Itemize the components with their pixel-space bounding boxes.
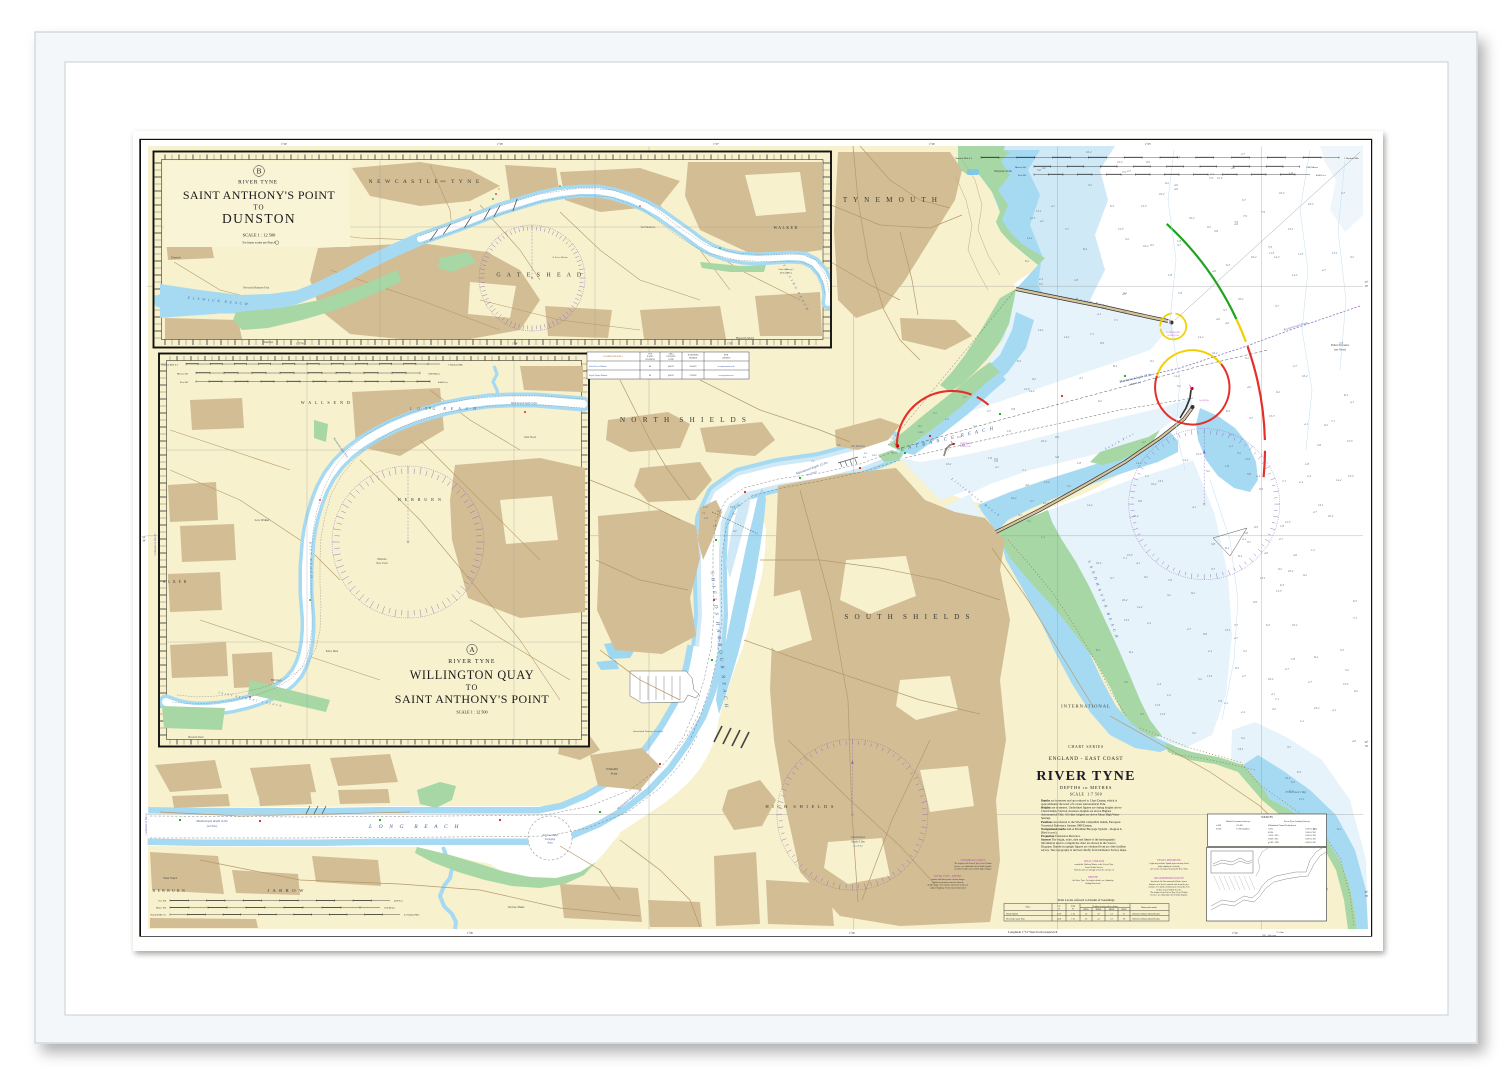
svg-text:Longitude 1°31' West from Gre: Longitude 1°31' West from Greenwich [1008, 930, 1058, 934]
svg-text:The depths of the Port of Tyne: The depths of the Port of Tyne Vessel Tr… [1150, 891, 1187, 894]
svg-text:T Y N E M O U T H: T Y N E M O U T H [843, 196, 939, 204]
svg-text:7.1: 7.1 [1275, 697, 1279, 701]
svg-text:(see Note): (see Note) [853, 845, 863, 848]
svg-text:54°: 54° [1365, 741, 1369, 744]
svg-text:RIVER TYNE - DEPTHS: RIVER TYNE - DEPTHS [934, 875, 962, 878]
svg-text:Jarrow Slake: Jarrow Slake [508, 905, 525, 909]
svg-text:2.7: 2.7 [1127, 169, 1131, 173]
svg-text:5.2: 5.2 [1340, 648, 1344, 652]
svg-text:13.1: 13.1 [1238, 747, 1244, 751]
svg-text:6.3: 6.3 [1353, 599, 1357, 603]
svg-text:North Shields: North Shields [1006, 913, 1018, 915]
svg-text:Elswick: Elswick [171, 256, 181, 260]
svg-text:9.2: 9.2 [1150, 243, 1154, 247]
svg-text:should use the Recommended Rou: should use the Recommended Route from a [1151, 880, 1187, 883]
svg-text:DUNSTON: DUNSTON [222, 211, 296, 226]
svg-text:Frenchman's Bay: Frenchman's Bay [1285, 790, 1308, 794]
svg-text:1:500-1:2 500: 1:500-1:2 500 [1305, 835, 1316, 837]
svg-text:2.4: 2.4 [1208, 649, 1212, 653]
svg-text:7.1: 7.1 [933, 411, 937, 415]
svg-text:3.2: 3.2 [1350, 255, 1354, 259]
svg-text:14.2: 14.2 [1336, 478, 1342, 482]
svg-text:B: B [256, 167, 261, 176]
svg-text:10.2: 10.2 [1288, 569, 1294, 573]
svg-text:7.9: 7.9 [1268, 245, 1272, 249]
svg-text:b Maintained Channel Dredged: b Maintained Channel Dredged areas [1268, 824, 1296, 827]
svg-text:10.2: 10.2 [1268, 677, 1274, 681]
svg-text:3.7: 3.7 [945, 448, 949, 452]
svg-text:5.2: 5.2 [1243, 649, 1247, 653]
svg-text:10.2: 10.2 [1011, 496, 1017, 500]
svg-text:2.4: 2.4 [1299, 480, 1303, 484]
svg-text:9.2: 9.2 [918, 424, 922, 428]
svg-text:7.9: 7.9 [1339, 341, 1343, 345]
svg-text:AREA: AREA [668, 353, 674, 356]
svg-text:3.2: 3.2 [1125, 237, 1129, 241]
svg-text:4.1: 4.1 [1242, 537, 1246, 541]
svg-text:L O N G R E A C H: L O N G R E A C H [368, 824, 461, 830]
svg-text:55°: 55° [1365, 281, 1369, 284]
svg-text:5.8: 5.8 [1037, 168, 1041, 172]
svg-text:MHWN: MHWN [1096, 909, 1102, 911]
svg-text:1.8: 1.8 [988, 456, 992, 460]
svg-text:2.60m below Ordnance Datum (Ne: 2.60m below Ordnance Datum (Newlyn) [1132, 918, 1160, 921]
svg-text:b 1856: b 1856 [1216, 828, 1221, 830]
svg-text:British Government Surveys: British Government Surveys [1226, 821, 1250, 823]
svg-text:the River Tyne. For further de: the River Tyne. For further details, see… [1073, 879, 1115, 882]
svg-text:Datum and remarks: Datum and remarks [1141, 907, 1157, 909]
svg-text:Low Walker: Low Walker [255, 518, 270, 522]
svg-text:Saint Peter's Marina: Saint Peter's Marina [589, 366, 607, 368]
svg-text:4000 Feet: 4000 Feet [394, 901, 403, 903]
svg-text:2654472: 2654472 [690, 366, 697, 368]
svg-text:4.1: 4.1 [1079, 376, 1083, 380]
svg-text:59': 59' [1365, 745, 1369, 748]
svg-text:Royal Quays Marina: Royal Quays Marina [589, 375, 607, 377]
svg-text:8.4: 8.4 [1314, 655, 1318, 659]
svg-text:8.4: 8.4 [1238, 554, 1242, 558]
svg-text:5.2: 5.2 [1027, 519, 1031, 523]
svg-text:1.8: 1.8 [1178, 291, 1182, 295]
svg-text:13.1: 13.1 [1124, 618, 1130, 622]
svg-text:6.3: 6.3 [1017, 359, 1021, 363]
svg-text:8.4: 8.4 [1313, 827, 1317, 831]
svg-text:3.7: 3.7 [1018, 513, 1022, 517]
svg-text:SAINT ANTHONY'S POINT: SAINT ANTHONY'S POINT [395, 692, 550, 706]
svg-text:CHANNELS: CHANNELS [645, 358, 655, 361]
svg-text:Light may indicate liquids rep: Light may indicate liquids represent may… [1149, 862, 1189, 865]
svg-text:Area: Area [546, 842, 553, 845]
svg-text:6.3: 6.3 [1266, 623, 1270, 627]
svg-text:5.2: 5.2 [1198, 677, 1202, 681]
svg-text:1 Nautical Mile: 1 Nautical Mile [1344, 157, 1359, 160]
svg-text:1.8: 1.8 [994, 459, 998, 463]
svg-text:9.2: 9.2 [733, 530, 737, 533]
svg-text:11.5: 11.5 [1298, 252, 1304, 256]
svg-text:7.9: 7.9 [1243, 214, 1247, 218]
svg-text:1.2: 1.2 [1145, 474, 1149, 478]
svg-text:3.2: 3.2 [1237, 451, 1241, 455]
svg-text:12.5: 12.5 [892, 452, 897, 455]
svg-text:Tidal streams set strongly acr: Tidal streams set strongly across the en… [1074, 869, 1114, 872]
svg-text:Oc.W.R.G.10s: Oc.W.R.G.10s [1167, 335, 1179, 337]
svg-text:15.3: 15.3 [1269, 414, 1275, 418]
svg-text:14.2: 14.2 [1183, 458, 1189, 462]
svg-text:5.2: 5.2 [1206, 469, 1210, 473]
svg-text:8.4: 8.4 [1102, 306, 1106, 310]
svg-text:10.2: 10.2 [1189, 216, 1195, 220]
svg-text:15.3: 15.3 [1127, 553, 1133, 557]
svg-text:Feet 100: Feet 100 [158, 901, 167, 903]
svg-text:10.2: 10.2 [1251, 255, 1257, 259]
svg-text:10.2: 10.2 [946, 462, 952, 466]
svg-text:2.7: 2.7 [1030, 499, 1034, 503]
svg-text:15.3: 15.3 [1348, 474, 1354, 478]
svg-text:2.7: 2.7 [1187, 627, 1191, 631]
svg-text:0.9: 0.9 [1203, 632, 1207, 636]
svg-text:1200 Metres: 1200 Metres [384, 908, 395, 910]
svg-text:3.7: 3.7 [1275, 304, 1279, 308]
svg-text:Metres 100: Metres 100 [156, 908, 167, 910]
svg-text:West Wood: West Wood [524, 436, 537, 439]
svg-text:8.4: 8.4 [1113, 364, 1117, 368]
svg-text:N O R T H S H I E L D S: N O R T H S H I E L D S [620, 416, 748, 424]
svg-text:6.3: 6.3 [1039, 282, 1043, 286]
svg-text:6.3: 6.3 [1280, 583, 1284, 587]
svg-text:7.1: 7.1 [1114, 318, 1118, 322]
svg-text:distance of at least 1 nautica: distance of at least 1 nautical mile fro… [1149, 883, 1189, 886]
svg-text:9.2: 9.2 [1303, 573, 1307, 577]
svg-text:2.7: 2.7 [987, 409, 991, 413]
svg-text:9.2: 9.2 [1144, 575, 1148, 579]
svg-text:1.2: 1.2 [1300, 719, 1304, 723]
svg-text:4.6: 4.6 [1225, 321, 1229, 325]
svg-text:1.2: 1.2 [1311, 548, 1315, 552]
svg-text:www.stpetersmarina.co.uk: www.stpetersmarina.co.uk [718, 366, 735, 368]
svg-text:DIALLING: DIALLING [666, 355, 676, 358]
svg-text:10.2: 10.2 [1151, 482, 1157, 486]
svg-text:9.2: 9.2 [1098, 399, 1102, 403]
svg-text:J A R R O W: J A R R O W [267, 888, 304, 893]
svg-text:6.3: 6.3 [1110, 204, 1114, 208]
svg-text:14.2: 14.2 [1087, 503, 1093, 507]
svg-text:5.2: 5.2 [1192, 731, 1196, 735]
svg-text:13.1: 13.1 [1318, 503, 1324, 507]
svg-text:Heights in metres above datum: Heights in metres above datum [1093, 905, 1118, 908]
svg-text:entrance. For further informat: entrance. For further information consul… [1148, 886, 1189, 889]
svg-text:4.1: 4.1 [1332, 708, 1336, 712]
svg-text:1°24': 1°24' [1232, 932, 1238, 935]
svg-text:7.9: 7.9 [1261, 210, 1265, 214]
svg-text:Long: Long [1071, 905, 1075, 908]
svg-text:5.0: 5.0 [1085, 913, 1087, 915]
svg-text:2.4: 2.4 [1241, 710, 1245, 714]
svg-text:5.8: 5.8 [1247, 472, 1251, 476]
svg-text:2.7: 2.7 [963, 395, 967, 399]
svg-text:1.8: 1.8 [713, 525, 717, 528]
svg-text:15.3: 15.3 [1141, 204, 1147, 208]
svg-text:12.5: 12.5 [1030, 216, 1036, 220]
svg-text:7.9: 7.9 [1168, 578, 1172, 582]
svg-text:Swinging: Swinging [545, 838, 556, 841]
svg-text:1500 Metres: 1500 Metres [428, 372, 440, 375]
svg-text:15.3: 15.3 [1217, 176, 1223, 180]
svg-text:ADDRESS: ADDRESS [722, 357, 731, 360]
svg-text:5.2: 5.2 [1067, 484, 1071, 488]
svg-text:15.3: 15.3 [1117, 160, 1123, 164]
svg-text:2.4: 2.4 [1307, 474, 1311, 478]
svg-text:7.1: 7.1 [702, 512, 706, 515]
svg-text:Feet 100: Feet 100 [180, 381, 189, 384]
svg-text:5.8: 5.8 [1011, 407, 1015, 411]
svg-text:3.7: 3.7 [1249, 416, 1253, 420]
svg-text:55 00: 55 00 [1057, 913, 1061, 915]
svg-text:6.3: 6.3 [1289, 789, 1293, 793]
svg-text:TIDAL STREAMS: TIDAL STREAMS [1084, 860, 1105, 863]
svg-text:5.8: 5.8 [1244, 531, 1248, 535]
svg-text:2.4: 2.4 [1039, 277, 1043, 281]
svg-text:(see Note): (see Note) [207, 825, 218, 828]
svg-text:H E B B U R N: H E B B U R N [153, 889, 186, 893]
svg-text:4.1: 4.1 [1192, 505, 1196, 509]
svg-text:The depths of the Port of Tyne: The depths of the Port of Tyne Vessel Tr… [954, 862, 991, 865]
svg-text:3.7: 3.7 [1177, 243, 1181, 247]
svg-text:12.5: 12.5 [1285, 520, 1291, 524]
svg-text:9.2: 9.2 [1324, 423, 1328, 427]
svg-text:Sailing Directions.: Sailing Directions. [1085, 882, 1101, 885]
svg-text:7.1: 7.1 [1065, 227, 1069, 231]
svg-text:3.2: 3.2 [1272, 707, 1276, 711]
svg-text:3.7: 3.7 [732, 513, 736, 516]
svg-text:2.7: 2.7 [1322, 268, 1326, 272]
svg-text:1500 Metres: 1500 Metres [1306, 166, 1318, 169]
svg-text:a 1966: a 1966 [1216, 825, 1221, 827]
svg-text:5.8: 5.8 [1211, 542, 1215, 546]
svg-text:5.8: 5.8 [1214, 229, 1218, 233]
svg-text:Saint Anthony's: Saint Anthony's [778, 268, 793, 271]
svg-text:2.4: 2.4 [1157, 682, 1161, 686]
svg-text:2.4: 2.4 [1147, 621, 1151, 625]
svg-text:d 2014: d 2014 [1268, 832, 1273, 834]
svg-text:(0)0191: (0)0191 [668, 374, 674, 377]
svg-text:Maintained: Maintained [851, 835, 865, 839]
svg-text:7.1: 7.1 [1230, 433, 1234, 437]
svg-text:58': 58' [1365, 895, 1369, 898]
svg-text:INTERNATIONAL: INTERNATIONAL [1061, 704, 1111, 709]
svg-text:1.8: 1.8 [1077, 461, 1081, 465]
svg-text:1:500-1:2 500: 1:500-1:2 500 [1305, 842, 1316, 844]
svg-text:7.9: 7.9 [1218, 699, 1222, 703]
svg-text:1:500-1:2 500: 1:500-1:2 500 [1305, 839, 1316, 841]
svg-text:Hewarth Shore: Hewarth Shore [187, 736, 205, 739]
svg-text:3.7: 3.7 [1242, 198, 1246, 202]
svg-text:Pelaw Main: Pelaw Main [326, 650, 339, 653]
svg-text:0.7: 0.7 [1123, 913, 1125, 915]
svg-text:13.1: 13.1 [1288, 227, 1294, 231]
svg-text:3.9: 3.9 [1097, 913, 1099, 915]
svg-text:3.7: 3.7 [1341, 191, 1345, 195]
svg-text:1°36': 1°36' [512, 343, 518, 346]
svg-text:3.7: 3.7 [1287, 745, 1291, 749]
svg-text:(0)0191: (0)0191 [668, 365, 674, 368]
svg-text:54°: 54° [1365, 891, 1369, 894]
svg-text:0.5 Nautical Mile: 0.5 Nautical Mile [404, 915, 419, 917]
svg-text:1 Nautical Mile: 1 Nautical Mile [448, 363, 463, 366]
svg-text:LIGHTHOUSE: LIGHTHOUSE [1166, 332, 1181, 334]
svg-text:1°25': 1°25' [1145, 143, 1151, 146]
svg-text:Place: Place [1026, 907, 1031, 909]
svg-text:Port of Tyne Authority Surveys: Port of Tyne Authority Surveys [1284, 820, 1310, 823]
svg-text:10.2: 10.2 [1122, 598, 1128, 602]
svg-text:Dunston: Dunston [263, 340, 274, 344]
svg-text:2728282: 2728282 [690, 375, 697, 377]
svg-text:The Narrows: The Narrows [851, 445, 865, 448]
svg-text:9.2: 9.2 [1207, 225, 1211, 229]
svg-text:New Town: New Town [376, 562, 388, 565]
svg-text:c 2013: c 2013 [1268, 828, 1273, 830]
svg-text:2.7: 2.7 [1242, 674, 1246, 678]
svg-text:5.0: 5.0 [1085, 919, 1087, 921]
svg-text:7.1: 7.1 [1282, 479, 1286, 483]
svg-text:13.1: 13.1 [1299, 797, 1305, 801]
svg-text:5.2: 5.2 [1088, 183, 1092, 187]
svg-text:1°26': 1°26' [929, 143, 935, 146]
svg-text:15.3: 15.3 [1276, 589, 1282, 593]
svg-text:3.7: 3.7 [1223, 308, 1227, 312]
svg-text:1.2: 1.2 [1224, 701, 1228, 705]
svg-text:10.2: 10.2 [1314, 706, 1320, 710]
svg-text:SCALE 1 : 12 500: SCALE 1 : 12 500 [456, 710, 487, 715]
svg-text:14.2: 14.2 [1038, 328, 1044, 332]
svg-text:Depths in the river channel, a: Depths in the river channel, and at the … [928, 885, 969, 887]
svg-text:3.7: 3.7 [1140, 712, 1144, 716]
svg-text:3.2: 3.2 [1122, 310, 1126, 314]
svg-text:1°27': 1°27' [713, 143, 719, 146]
svg-text:11.5: 11.5 [1207, 674, 1213, 678]
svg-text:2.7: 2.7 [1313, 510, 1317, 514]
svg-text:1°28': 1°28' [467, 932, 473, 935]
svg-text:4.6: 4.6 [1234, 222, 1238, 226]
svg-text:L O N G R E A C H: L O N G R E A C H [409, 406, 478, 411]
svg-text:Lat: Lat [1058, 906, 1061, 908]
svg-text:0.9: 0.9 [1146, 160, 1150, 164]
svg-text:13.1: 13.1 [1260, 576, 1266, 580]
svg-text:1°37'W: 1°37'W [296, 343, 304, 346]
svg-text:10.2: 10.2 [1133, 514, 1139, 518]
svg-text:14.2: 14.2 [1174, 374, 1180, 378]
svg-text:WALKER: WALKER [773, 225, 798, 230]
svg-text:1.8: 1.8 [1074, 278, 1078, 282]
svg-text:13.1: 13.1 [1158, 479, 1164, 483]
svg-text:VESSEL REPORTING: VESSEL REPORTING [1157, 859, 1182, 862]
svg-text:14.2: 14.2 [1029, 389, 1035, 393]
svg-text:10.2: 10.2 [1086, 150, 1092, 154]
svg-text:For linear scales see Plan A: For linear scales see Plan A [242, 241, 276, 245]
svg-text:Point: Point [611, 772, 618, 776]
svg-text:2.4: 2.4 [1256, 474, 1260, 478]
svg-text:2.7: 2.7 [1279, 537, 1283, 541]
svg-text:Maintained depth 9.0m: Maintained depth 9.0m [510, 402, 537, 405]
svg-text:1°29': 1°29' [281, 143, 287, 146]
svg-text:SCALE 1:7 500: SCALE 1:7 500 [1070, 793, 1102, 797]
svg-text:13.1: 13.1 [1036, 209, 1042, 213]
svg-text:MLWN: MLWN [1109, 909, 1115, 911]
svg-text:Hebburn: Hebburn [377, 558, 387, 561]
svg-text:4.6: 4.6 [1174, 187, 1178, 191]
svg-text:14.2: 14.2 [1044, 480, 1050, 484]
svg-text:9.2: 9.2 [1150, 359, 1154, 363]
svg-text:contact with them poses extrem: contact with them poses extreme danger. [931, 878, 965, 881]
svg-text:subject to silting. For the la: subject to silting. For the latest infor… [930, 886, 966, 889]
svg-text:1:500-1:2 500: 1:500-1:2 500 [1305, 832, 1316, 834]
svg-text:7.1: 7.1 [1022, 468, 1026, 472]
svg-text:0.9: 0.9 [1253, 600, 1257, 604]
svg-text:2.7: 2.7 [1241, 152, 1245, 156]
svg-text:survey. The topography is deri: survey. The topography is derived chiefl… [1041, 848, 1127, 852]
svg-text:consult the Harbour Master or: consult the Harbour Master or the Port o… [1075, 863, 1114, 866]
svg-text:Nautical Mile 0.1: Nautical Mile 0.1 [151, 915, 166, 917]
svg-text:1 36: 1 36 [1071, 919, 1074, 921]
svg-text:4.1: 4.1 [1229, 444, 1233, 448]
svg-text:Maintained depth 6.0m: Maintained depth 6.0m [195, 819, 228, 823]
svg-text:DEPTHS IN METRES: DEPTHS IN METRES [1060, 785, 1113, 790]
svg-text:Overhead cables may conduct hi: Overhead cables may conduct high voltage… [954, 868, 992, 871]
svg-text:1.2: 1.2 [1167, 693, 1171, 697]
svg-text:3.7: 3.7 [1234, 623, 1238, 627]
svg-text:5.2: 5.2 [1241, 736, 1245, 740]
svg-text:NUMBER: NUMBER [689, 358, 698, 360]
svg-text:15.3: 15.3 [1196, 452, 1202, 456]
svg-text:4.1: 4.1 [738, 504, 742, 507]
svg-text:3.7: 3.7 [1110, 576, 1114, 580]
svg-text:RIVER TYNE: RIVER TYNE [1036, 769, 1135, 784]
svg-text:All vessels entering or leavin: All vessels entering or leaving the Rive… [1150, 868, 1188, 871]
svg-text:15.3: 15.3 [1024, 387, 1030, 391]
svg-text:54°: 54° [142, 536, 146, 539]
svg-text:7.1: 7.1 [1090, 332, 1094, 336]
svg-text:H E B B U R N: H E B B U R N [398, 497, 443, 502]
svg-text:1.8: 1.8 [1110, 913, 1112, 915]
svg-text:59': 59' [142, 540, 146, 543]
svg-text:0.9: 0.9 [1259, 487, 1263, 491]
svg-text:Metres 100: Metres 100 [1015, 166, 1027, 169]
svg-text:10.2: 10.2 [1143, 244, 1149, 248]
svg-text:CHART SERIES: CHART SERIES [1068, 745, 1104, 749]
svg-text:4.1: 4.1 [1097, 919, 1099, 921]
svg-text:Hewarth Shore: Hewarth Shore [735, 336, 755, 340]
svg-text:10.2: 10.2 [1302, 374, 1308, 378]
svg-text:Gp Fl(2)10s: Gp Fl(2)10s [1199, 399, 1209, 402]
svg-text:10.2: 10.2 [1212, 351, 1218, 355]
svg-text:RADIO: RADIO [647, 355, 654, 358]
svg-text:0.9: 0.9 [1100, 341, 1104, 345]
svg-text:7.1: 7.1 [1353, 616, 1357, 620]
svg-text:4.1: 4.1 [1136, 561, 1140, 565]
svg-text:14.2: 14.2 [1137, 605, 1143, 609]
svg-text:11.5: 11.5 [1269, 251, 1275, 255]
svg-text:10.2: 10.2 [1159, 192, 1165, 196]
svg-text:8.4: 8.4 [1025, 259, 1029, 263]
svg-text:Continued on Plan A: Continued on Plan A [145, 813, 148, 835]
svg-text:0.6: 0.6 [1123, 919, 1125, 921]
svg-text:T Y N E: T Y N E [451, 179, 481, 185]
svg-text:ENGLAND - EAST COAST: ENGLAND - EAST COAST [1049, 756, 1124, 762]
svg-text:0.9: 0.9 [1138, 499, 1142, 503]
svg-text:1:7 920 (leadline): 1:7 920 (leadline) [1236, 827, 1250, 830]
svg-text:1.8: 1.8 [704, 517, 708, 520]
svg-text:1.8: 1.8 [1305, 462, 1309, 466]
svg-text:H I G H S H I E L D S: H I G H S H I E L D S [765, 804, 834, 809]
